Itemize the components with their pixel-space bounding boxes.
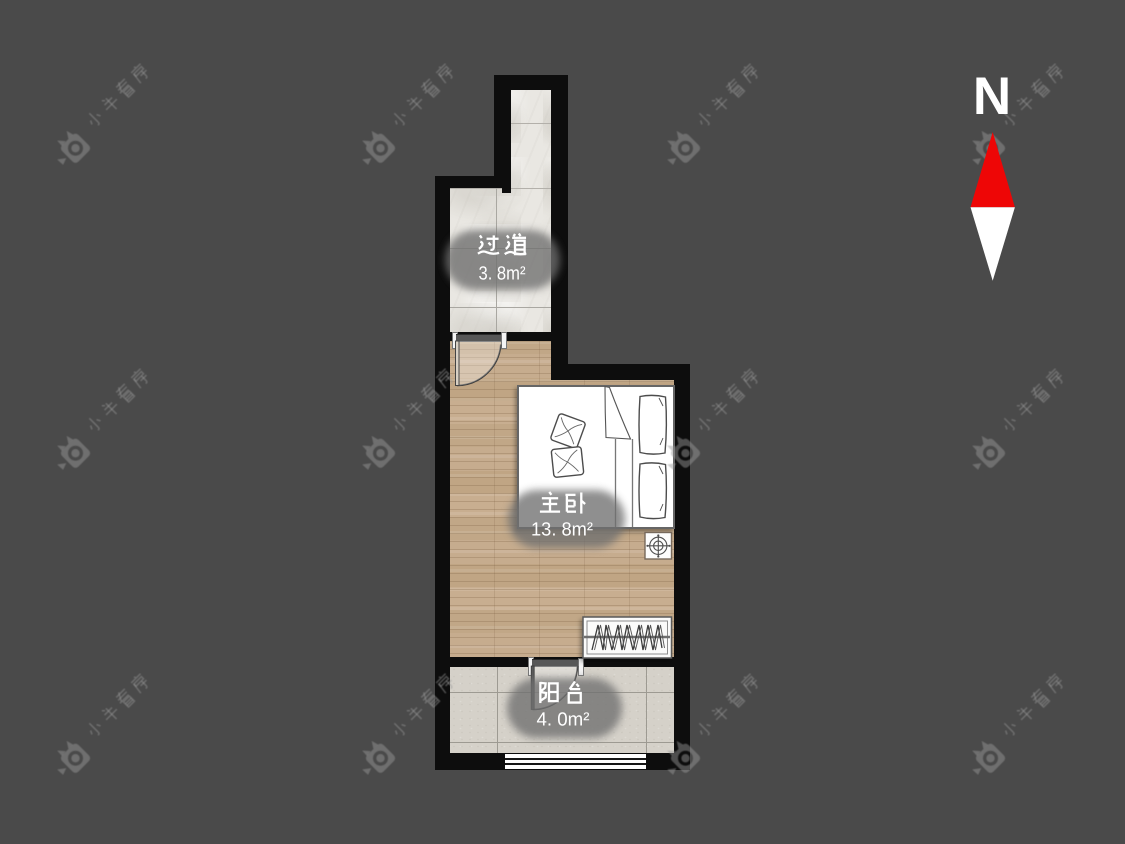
svg-text:N: N: [973, 67, 1011, 126]
